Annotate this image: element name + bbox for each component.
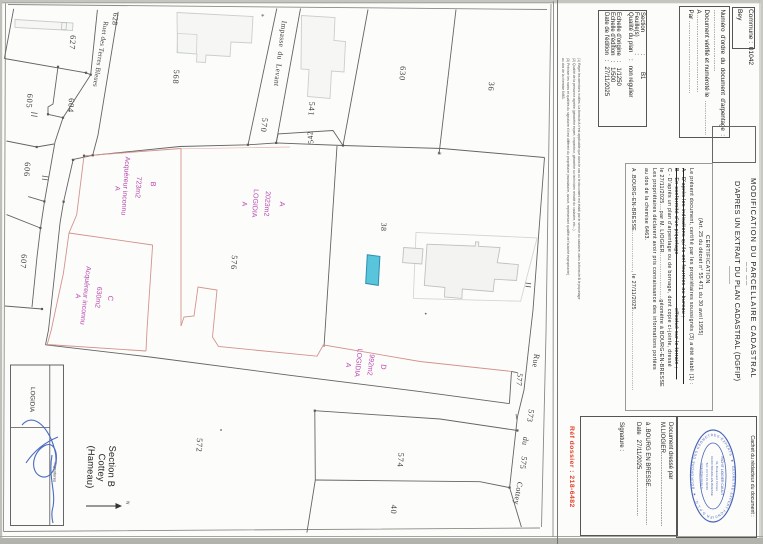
svg-text:576: 576 [229, 255, 239, 270]
svg-text:01000 BOURG-EN-BRESSE: 01000 BOURG-EN-BRESSE [710, 456, 714, 496]
svg-text:N: N [125, 501, 130, 505]
svg-text:570: 570 [259, 117, 270, 133]
svg-text:C: C [106, 295, 116, 301]
svg-text:604: 604 [66, 98, 76, 113]
svg-text:572: 572 [195, 438, 204, 453]
svg-text:Section B: Section B [106, 445, 117, 487]
svg-text:Tél : 04 74 21 99 83: Tél : 04 74 21 99 83 [705, 462, 709, 490]
svg-text:628: 628 [110, 12, 120, 26]
svg-text:*: * [261, 13, 265, 21]
svg-text:36: 36 [486, 81, 496, 92]
svg-text:605: 605 [24, 93, 34, 108]
svg-text:723m2: 723m2 [134, 176, 142, 198]
svg-text:B: B [149, 181, 158, 187]
svg-text:(Hameau): (Hameau) [85, 445, 96, 488]
svg-text:LOGIDIA: LOGIDIA [28, 387, 36, 413]
svg-text:541: 541 [306, 101, 316, 116]
svg-text:Cottey: Cottey [96, 453, 107, 482]
svg-text:A: A [278, 201, 287, 207]
svg-text:574: 574 [395, 452, 405, 467]
svg-text:A: A [113, 186, 120, 191]
svg-text:41, Boulevard Victoire: 41, Boulevard Victoire [715, 461, 719, 491]
svg-text:40: 40 [389, 504, 399, 515]
svg-text:607: 607 [18, 254, 28, 269]
svg-text:568: 568 [171, 69, 181, 84]
svg-text:627: 627 [67, 35, 77, 50]
svg-text:A: A [240, 201, 247, 206]
svg-text:RICHIT LIOGIER CAULIT: RICHIT LIOGIER CAULIT [720, 457, 724, 496]
svg-text:577: 577 [514, 373, 524, 387]
svg-text:38: 38 [379, 222, 389, 231]
svg-text:606: 606 [22, 162, 32, 177]
svg-text:D: D [379, 364, 389, 370]
svg-text:542: 542 [305, 130, 315, 144]
svg-text:du: du [520, 436, 530, 446]
svg-text:630: 630 [397, 66, 407, 81]
svg-text:liogier@geometre.fr: liogier@geometre.fr [700, 463, 704, 488]
